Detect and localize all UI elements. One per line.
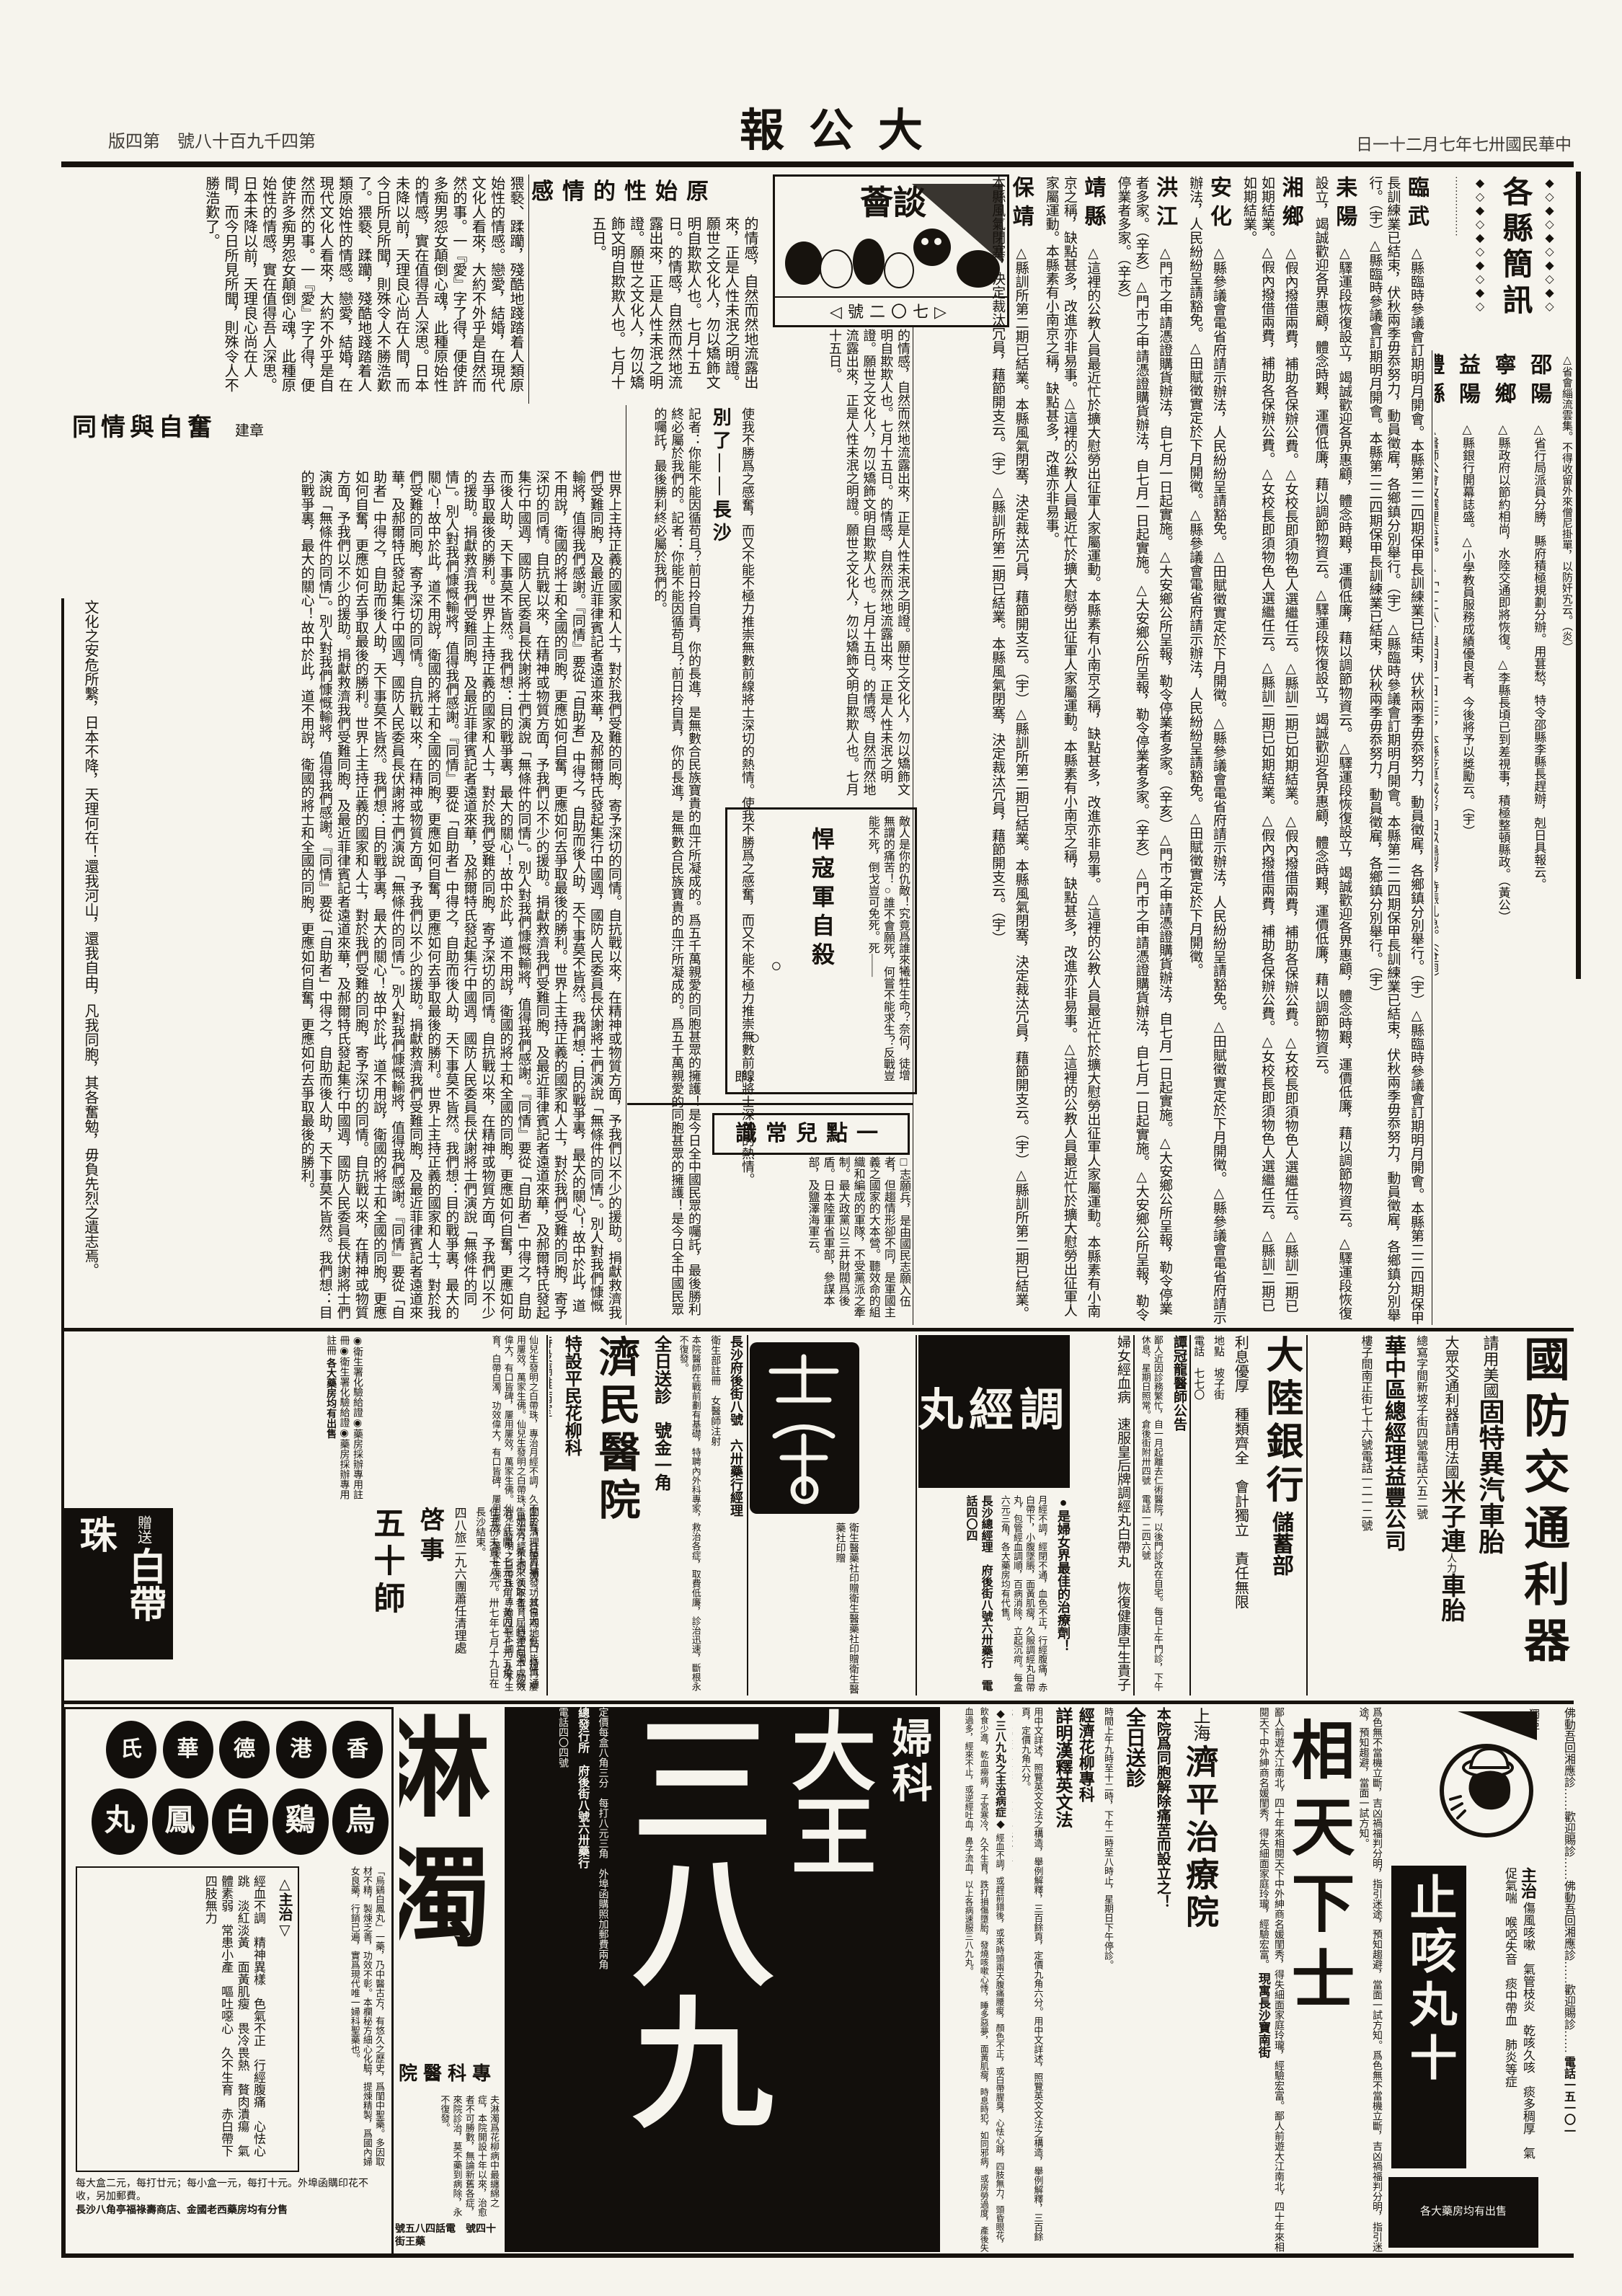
date-line: 日一十二月七年七卅國民華中 [1312, 134, 1572, 160]
wushi-unit-small: 四八旅二九六團蕭任清理處 [451, 1507, 466, 1696]
ad-divider-3 [1133, 1335, 1135, 1696]
bank-telephone: 電話 七七〇 [1192, 1335, 1205, 1696]
col-rule-4 [1432, 350, 1432, 1325]
ads-band1-rule [61, 1328, 1574, 1331]
jimin-dept1: 特設平民花柳科 [559, 1335, 582, 1696]
county-section: 靖縣△這裡的公教人員最近忙於擴大慰勞出征軍人家屬運動。本縣素有小南京之稱，缺點甚… [1042, 176, 1107, 1325]
county-body: △門市之申請憑證購貨辦法，自七月一日起實施。△大安鄉公所呈報，勒令停業者多家。（… [1115, 176, 1172, 1321]
cough-ad: 獨亞 止咳丸十 主治 傷風咳嗽 氣管枝炎 乾咳久咳 痰多稠厚 氣促氣喘 喉啞失音… [1386, 1707, 1541, 2252]
ink-logo [750, 1342, 859, 1514]
goodyear-title: 國防交通利器 [1512, 1335, 1573, 1696]
fuke389-price: 定價每盒八角三分 每打八元三角 外埠函購照加郵費兩角 [595, 1707, 608, 2252]
monkey-outline-1 [820, 250, 852, 288]
wushi-body: 關於清理結算補發，其日期地點，特再通告如次：希未來領取者，屆時逕向本處接洽。計開… [473, 1507, 539, 1696]
circle-mark-2: ○ [749, 1026, 761, 1050]
bank-name-col: 大陸銀行 儲蓄部 [1255, 1335, 1305, 1696]
bank-ad: 大陸銀行 儲蓄部 利息優厚 種類齊全 會計獨立 責任無限 地點 坡子街 電話 七… [1192, 1335, 1305, 1696]
tiaojing-ad: 婦女經血病 速服皇后牌調經丸白帶丸 恢復健康早生貴子 丸經調 ●是婦女界最佳的治… [918, 1335, 1132, 1696]
tan-title: 譚冠龍醫師公告 [1170, 1335, 1188, 1696]
bank-features: 利息優厚 種類齊全 會計獨立 責任無限 [1231, 1335, 1249, 1696]
ad-divider-1 [1306, 1335, 1308, 1696]
baifeng-price-sellers: 每大盒二元，每打廿元；每小盒一元，每打十元。外埠函購印花不收，另加郵費。 長沙八… [76, 2178, 381, 2247]
brand-oval: 港 [276, 1721, 327, 1778]
county-name: 寧鄉 [1492, 353, 1515, 418]
county-section: 邵陽△省行局派員分勝，縣府積極規劃分辦。用葚愁，特令邵縣李縣長趕辦，剋日具報云。 [1525, 353, 1554, 1324]
county-body: △縣銀行開幕誌盛。△小學教員服務成績優良者，今後將予以獎勵云。（宇） [1461, 418, 1474, 838]
county-name: 洪江 [1153, 176, 1176, 241]
fuke389-black-panel: 婦科 大王 三八九 定價每盒八角三分 每打八元三角 外埠函購照加郵費兩角 總發行… [505, 1707, 940, 2252]
side-column: 佛動吾回湘應診……歡迎賜診……佛動吾回湘應診……歡迎賜診…… 電話一五一〇一 [1547, 1707, 1576, 2252]
baidai-logo-col: 贈送 白帶珠 [68, 1515, 167, 1652]
brand-oval: 香 [332, 1721, 383, 1778]
masthead: 報公大 [692, 102, 995, 164]
ad-divider-2 [1189, 1335, 1191, 1696]
brief-col-a: △省會緇流雲集。不得收留外來僧尼掛單，以防奸宄云。（炎） 邵陽△省行局派員分勝，… [1435, 353, 1573, 1324]
cough-big-text: 止咳丸十 [1397, 1873, 1460, 2161]
essay-text-right: 的情感，自然而然地流露出來，正是人性未泯之明證。願世之文化人，勿以矯飾文明自欺欺… [531, 216, 759, 402]
book-seller: 代售處長沙各大書局 東萬興紙號印行 [1012, 1707, 1014, 2252]
tiaojing-logo-box: 丸經調 [918, 1335, 1070, 1488]
wushi-unit-big: 五十師 [365, 1507, 407, 1696]
cough-symptoms: 傷風咳嗽 氣管枝炎 乾咳久咳 痰多稠厚 氣促氣喘 喉啞失音 痰中帶血 肺炎等症 [1503, 1867, 1535, 2159]
brand-oval: 白 [212, 1789, 268, 1855]
tongqing-author: 建章 [235, 422, 264, 440]
county-section: 安化△縣參議會電省府請示辦法，人民紛紛呈請豁免。△田賦徵實定於下月開徵。△縣參議… [1186, 176, 1233, 1325]
changshi-title: 識常兒點一 [712, 1113, 910, 1155]
county-name: 耒陽 [1332, 176, 1356, 241]
header-rule [61, 161, 1574, 167]
ads-band2-rule [61, 1701, 1574, 1704]
jimin-agent: 長沙府後街八號 六卅藥行經理 [727, 1335, 744, 1696]
brief-header-box: ◆◇◆◇◆◇◆◇◆◇ 各縣簡訊 ◆◇◆◇◆◇◆◇◆◇ ……………… [1435, 176, 1573, 346]
goodyear-line2-small: 大眾交通利器請用法國 [1442, 1335, 1458, 1479]
tongqing-body: 世界上主持正義的國家和人士，對於我們受難的同胞，寄予深切的同情。自抗戰以來，在精… [66, 470, 623, 1324]
tiaojing-slogan: ●是婦女界最佳的治療劑！ [1054, 1495, 1071, 1696]
baifeng-price: 每大盒二元，每打廿元；每小盒一元，每打十元。外埠函購印花不收，另加郵費。 [76, 2178, 381, 2204]
brand-oval: 華 [163, 1721, 213, 1778]
hankou-box: 敵人是你的仇敵！究竟爲誰來犧牲生命？奈何，徒增無謂的痛苦！○誰不會願死，何嘗不能… [725, 807, 917, 1094]
jiping-clinic-ad: 上海 濟平治療院 本院爲同胞解除痛苦而設立之！ 全日送診 時間上午九時至十二時，… [1077, 1707, 1221, 2252]
baidai-brand-small: 贈送 [136, 1515, 151, 1544]
tiaojing-lower: ●是婦女界最佳的治療劑！ 月經不調，經閉不通，血色不正，行經腹痛，赤白帶下，小腹… [918, 1495, 1071, 1696]
cough-zhuzhi-label: 主治 [1519, 1867, 1537, 1899]
brief-intro: △省會緇流雲集。不得收留外來僧尼掛單，以防奸宄云。（炎） [1559, 353, 1573, 1324]
fuke389-giant: 三八九 [615, 1707, 763, 2252]
side-column-text: 佛動吾回湘應診……歡迎賜診……佛動吾回湘應診……歡迎賜診…… [1562, 1707, 1574, 2053]
right-edge-rule [1576, 172, 1581, 979]
county-body: △醫師公會改選理監事。△「一二八」與四月一日上午，本縣乾旱成災，田畝龜裂，待賑孔… [1435, 418, 1438, 985]
county-name: 臨武 [1404, 176, 1428, 241]
jiping-name-col: 上海 濟平治療院 [1177, 1707, 1221, 2252]
cough-zhuzhi: 主治 傷風咳嗽 氣管枝炎 乾咳久咳 痰多稠厚 氣促氣喘 喉啞失音 痰中帶血 肺炎… [1471, 1867, 1538, 2168]
brief-region-b: 臨武△縣臨時參議會訂期明月開會。本縣第二二四期保甲長訓練業已結束，伏秋兩季毋忝努… [917, 176, 1430, 1325]
jiping-name: 濟平治療院 [1182, 1745, 1218, 1932]
fortuneteller-title: 相天下士 [1289, 1717, 1358, 2150]
bieliao-body: 記者：你能不能因循苟且？前日拎自責，你的長進，是無數合民族寶貴的血汗所凝成的。爲… [651, 407, 702, 1323]
county-name: 安化 [1207, 176, 1231, 241]
wushi-title: 啓事 [412, 1507, 445, 1696]
ink-logo-glyphs [750, 1342, 859, 1514]
county-body: △假內撥借兩費，補助各保辦公費。△女校長即須物色人選繼任云。△縣訓二期已如期結業… [1241, 176, 1298, 1313]
baifeng-zhuzhi-box: △主治▽ 經血不調 精神異樣 色氣不正 行經腹痛 心怯心跳 淡紅淡黃 面黃肌瘦 … [76, 1866, 299, 2172]
ornament-left: ◆◇◆◇◆◇◆◇◆◇ [1471, 176, 1486, 346]
county-name: 邵陽 [1527, 353, 1551, 418]
county-body: △驛運段恢復設立，竭誠歡迎各界惠顧，體念時艱，運價低廉，藉以調節物資云。△驛運段… [1313, 176, 1352, 1320]
monkey-silhouette-1 [785, 241, 823, 285]
county-section: 洪江△門市之申請憑證購貨辦法，自七月一日起實施。△大安鄉公所呈報，勒令停業者多家… [1114, 176, 1179, 1325]
goodyear-company: 華中區總經理益豐公司 [1378, 1335, 1407, 1696]
cough-black-panel: 止咳丸十 [1391, 1866, 1466, 2168]
county-name: 澧縣 [1435, 353, 1443, 418]
goodyear-line1-small: 請用美國 [1481, 1335, 1499, 1399]
jimin-fee: 全日送診 號金一角 [649, 1335, 672, 1696]
circle-mark-1: ○ [771, 954, 782, 978]
jimin-dept2: 特設隔離病室 [549, 1335, 554, 1696]
county-name: 益陽 [1455, 353, 1479, 418]
brief-title: 各縣簡訊 [1494, 176, 1534, 346]
jimin-note: 衛生部註冊 女醫師注射 [708, 1335, 721, 1696]
goodyear-line2-tail: 車胎 [1437, 1573, 1464, 1622]
goodyear-office2: 樓子間南正街七十六號電話一二一二號 [1357, 1335, 1373, 1696]
hankou-signature: 即。 [735, 1069, 761, 1086]
fuke389-label: 婦科 [881, 1717, 934, 2252]
col-rule-2 [626, 405, 626, 1325]
fortuneteller-address: 現寓長沙寶南街 [1257, 1972, 1270, 2058]
issue-number: 版四第 號八十百九千四第 [108, 131, 454, 160]
brand-oval: 丸 [92, 1789, 148, 1855]
county-name: 湘鄉 [1279, 176, 1303, 241]
baifeng-ad: 香 港 德 華 氏 烏 鷄 白 鳳 丸 「烏鷄白鳳丸」一藥，乃中醫古方，有悠久之… [63, 1707, 394, 2256]
goodyear-line2-note: 人力 [1445, 1553, 1456, 1573]
county-body: △省行局派員分勝，縣府積極規劃分辦。用葚愁，特令邵縣李縣長趕辦，剋日具報云。 [1532, 418, 1546, 890]
baidai-cert-area: ◉衛生署化驗給證◉藥房採辦專用註冊◉衛生署化驗給證◉藥房採辦專用註冊 各大藥房均… [63, 1335, 363, 1502]
county-name: 靖縣 [1081, 176, 1104, 241]
goodyear-ad: 國防交通利器 請用美國固特異汽車胎 大眾交通利器請用法國米子連人力車胎 總寫字間… [1309, 1335, 1573, 1696]
linzhuo-ad: 淋濁 院醫科專 夫淋濁爲花柳病中最纏綿之症，本院開設十年以來，治愈者不可勝數，無… [395, 1707, 500, 2252]
brief-dots: ……………… [1451, 176, 1464, 346]
county-section: 湘鄉△假內撥借兩費，補助各保辦公費。△女校長即須物色人選繼任云。△縣訓二期已如期… [1240, 176, 1305, 1325]
doctor-tan-notice: 譚冠龍醫師公告 鄙人近因診務繁忙，自一月起離去仁術醫院，以後門診改在自宅。每日上… [1136, 1335, 1188, 1696]
jiping-city: 上海 [1190, 1707, 1209, 1742]
fortuneteller-right-col: 爲色無不當機立斷，吉凶禍福判分明，指引迷途，預知趨避，當面一試方知。爲色無不當機… [1355, 1707, 1383, 2252]
bank-name: 大陸銀行 [1260, 1335, 1301, 1508]
hankou-title: 悍寇軍自殺 [805, 827, 837, 1043]
jiping-slogan: 本院爲同胞解除痛苦而設立之！ [1153, 1707, 1171, 2252]
ad-divider-5 [747, 1335, 748, 1696]
fuke389-tel: 電話四〇四號 [556, 1707, 569, 2252]
fuke389-zhuzhi-head: ◆三八九丸之主治病症◆ [994, 1707, 1006, 1830]
col-rule-3 [913, 174, 913, 1325]
linzhuo-title: 淋濁 [399, 1711, 497, 2053]
brand-oval: 氏 [106, 1721, 156, 1778]
jimin-body: 本院醫師在戰前劃有基礎，特聘內外科專家，救治各症，取費低廉，診治迅速，斷根永不復… [677, 1335, 701, 1696]
county-body: △縣臨時參議會訂期明月開會。本縣第二二四期保甲長訓練業已結束，伏秋兩季毋忝努力，… [1367, 176, 1424, 1325]
fortuneteller-ad: 爲色無不當機立斷，吉凶禍福判分明，指引迷途，預知趨避，當面一試方知。爲色無不當機… [1226, 1707, 1383, 2252]
linzhuo-subtitle: 院醫科專 [395, 2059, 500, 2089]
book-body: 用中文詳述，照覽英文文法之構造，舉例解釋，三百餘頁，定價九角六分。用中文詳述，照… [1019, 1707, 1044, 2252]
essay-continuation: 的情感，自然而然地流露出來，正是人性未泯之明證。願世之文化人，勿以矯飾文明自欺欺… [763, 329, 911, 800]
bank-dept: 儲蓄部 [1269, 1511, 1293, 1576]
county-section: 寧鄉△縣政府以節約相尚，水陸交通即將恢復。△李縣長頃已到差視事，積極整頓縣政。（… [1489, 353, 1517, 1324]
jiping-dept: 經濟花柳專科 [1077, 1707, 1096, 2252]
fuke389-zhuzhi: ◆三八九丸之主治病症◆ 經血不調，或趕前錯後，或來時頭兩天腹痛腰痠，顏色不正，或… [944, 1707, 1008, 2252]
brand-oval: 德 [219, 1721, 270, 1778]
wushi-notice: 關於清理結算補發，其日期地點，特再通告如次：希未來領取者，屆時逕向本處接洽。計開… [180, 1507, 539, 1696]
county-name: 保靖 [1009, 176, 1033, 241]
brand-oval: 鷄 [272, 1789, 329, 1855]
tongqing-title: 同情與自奮 [72, 412, 216, 445]
side-column-tel: 電話一五一〇一 [1562, 2056, 1574, 2137]
monkey-outline-2 [885, 253, 913, 288]
county-section: 益陽△縣銀行開幕誌盛。△小學教員服務成績優良者，今後將予以獎勵云。（宇） [1453, 353, 1481, 1324]
goodyear-line2: 大眾交通利器請用法國米子連人力車胎 [1434, 1335, 1466, 1696]
county-section: 保靖△縣訓所第二期已結業。本縣風氣閉塞，決定裁汰冗員，藉節開支云。（宇）△縣訓所… [988, 176, 1035, 1325]
brand-oval: 烏 [332, 1789, 389, 1855]
changshi-body: □志願兵，是由國民志願入伍者，但趨情形卻不同，是軍國主義之國家的大本營。聽效命的… [710, 1156, 911, 1324]
county-section: 臨武△縣臨時參議會訂期明月開會。本縣第二二四期保甲長訓練業已結束，伏秋兩季毋忝努… [1365, 176, 1430, 1325]
fuke389-dawang: 大王 [768, 1707, 881, 2252]
tongqing-title-row: 同情與自奮 建章 [72, 412, 288, 463]
left-edge-column: 文化之安危所繫，日本不降，天理何在！還我河山，還我自由，凡我同胞，其各奮勉，毋負… [66, 600, 99, 1322]
goodyear-line1: 請用美國固特異汽車胎 [1472, 1335, 1507, 1696]
fuke389-ad: ◆三八九丸之主治病症◆ 經血不調，或趕前錯後，或來時頭兩天腹痛腰痠，顏色不正，或… [505, 1707, 1008, 2252]
hankou-body: 敵人是你的仇敵！究竟爲誰來犧牲生命？奈何，徒增無謂的痛苦！○誰不會願死，何嘗不能… [841, 815, 910, 1086]
goodyear-line1-big: 固特異汽車胎 [1476, 1399, 1504, 1554]
goodyear-office1: 總寫字間新坡子街四號電話六五二號 [1413, 1335, 1428, 1696]
baifeng-brand-row2: 烏 鷄 白 鳳 丸 [92, 1789, 389, 1859]
ad-divider-6 [546, 1335, 548, 1696]
county-section: 耒陽△驛運段恢復設立，竭誠歡迎各界惠顧，體念時艱，運價低廉，藉以調節物資云。△驛… [1312, 176, 1359, 1325]
book-ad: 詳明漢釋英文法 用中文詳述，照覽英文文法之構造，舉例解釋，三百餘頁，定價九角六分… [1012, 1707, 1073, 2252]
essay-headline: 感情的性始原 [531, 177, 761, 209]
baifeng-symptoms: 經血不調 精神異樣 色氣不正 行經腹痛 心怯心跳 淡紅淡黃 面黃肌瘦 畏冷畏熱 … [81, 1875, 266, 2163]
jiping-fee: 全日送診 [1120, 1707, 1147, 2252]
bank-address: 地點 坡子街 [1210, 1335, 1225, 1696]
brand-oval: 鳳 [152, 1789, 208, 1855]
baidai-sale: 各大藥房均有出售 [325, 1358, 336, 1439]
county-body: △這裡的公教人員最近忙於擴大慰勞出征軍人家屬運動。本縣素有小南京之稱，缺點甚多，… [1044, 176, 1101, 1318]
tiaojing-headline: 婦女經血病 速服皇后牌調經丸白帶丸 恢復健康早生貴子 [1076, 1335, 1132, 1696]
jiping-hours: 時間上午九時至十二時，下午二時至八時止，星期日下午停診。 [1102, 1707, 1114, 2252]
jimin-name: 濟民醫院 [588, 1335, 643, 1696]
fuke389-agent: 總發行所 府後街八號六卅藥行 [575, 1707, 590, 2252]
baifeng-sellers: 長沙八角亭福祿壽商店、金國老西藥房均有分售 [76, 2204, 381, 2217]
county-body: △縣訓所第二期已結業。本縣風氣閉塞，決定裁汰冗員，藉節開支云。（宇）△縣訓所第二… [990, 176, 1029, 1320]
ornament-right: ◆◇◆◇◆◇◆◇◆◇ [1541, 176, 1556, 346]
goodyear-line2-big: 米子連 [1437, 1479, 1464, 1553]
baifeng-description: 「烏鷄白鳳丸」一藥，乃中醫古方，有悠久之歷史，爲閨中聖藥。多因取材不精，製煉乏善… [306, 1866, 386, 2169]
newspaper-page: 版四第 號八十百九千四第 報公大 日一十二月七年七卅國民華中 薈談 [0, 0, 1622, 2296]
monkey-silhouette-2 [853, 239, 885, 285]
col-rule-1 [528, 174, 529, 404]
cough-footer: 各大藥房均有出售 [1388, 2177, 1538, 2248]
tiaojing-logo-text: 丸經調 [918, 1382, 1070, 1441]
baifeng-brand-row1: 香 港 德 華 氏 [106, 1721, 383, 1781]
divider-rule [627, 1103, 913, 1105]
ad-divider-4 [916, 1335, 917, 1696]
left-ads-block: 仙兒生發明之白帶珠，專治月經不調，久不生育，白帶白濁，功效偉大，有口皆碑，屢用屢… [63, 1335, 541, 1696]
tiaojing-body: 月經不調，經閉不通，血色不正，行經腹痛，赤白帶下，小腹墜脹，面黃肌瘦，久服調經丸… [999, 1495, 1049, 1696]
ink-logo-caption: 衛生醫藥社印贈衛生醫藥社印贈衛生醫藥社印贈 [750, 1522, 859, 1694]
jimin-hospital-ad: 長沙府後街八號 六卅藥行經理 衛生部註冊 女醫師注射 本院醫師在戰前劃有基礎，特… [549, 1335, 744, 1696]
fortuneteller-left-col: 鄙人前遊大江南北，四十年來相閱天下中外紳商名媛閨秀，得失細面家庭玲瓏，經驗宏富。… [1226, 1707, 1286, 2252]
coughing-man-illustration [1429, 1711, 1537, 1860]
left-triangle-icon: ◁ [830, 301, 848, 322]
county-body: △縣政府以節約相尚，水陸交通即將恢復。△李縣長頃已到差視事，積極整頓縣政。（黃公… [1497, 418, 1510, 923]
book-title: 詳明漢釋英文法 [1050, 1707, 1073, 2252]
baidai-logo-box: 贈送 白帶珠 [63, 1508, 173, 1659]
linzhuo-body: 夫淋濁爲花柳病中最纏綿之症，本院開設十年以來，治愈者不可勝數，無論新舊各症，來院… [395, 2095, 500, 2222]
essay-text-left: 猥褻、蹂躪，殘酷地踐踏着人類原始性的情感。戀愛，結婚，在現代文化人看來，大約不外… [66, 176, 525, 402]
county-section: 澧縣△醫師公會改選理監事。△「一二八」與四月一日上午，本縣乾旱成災，田畝龜裂，待… [1435, 353, 1445, 1324]
tiaojing-agent: 長沙總經理 府後街八號六卅藥行 電話四〇四 [962, 1495, 993, 1696]
linzhuo-address: 號五八四話電 號四十街王藥 [395, 2223, 500, 2249]
county-body: △縣參議會電省府請示辦法，人民紛紛呈請豁免。△田賦徵實定於下月開徵。△縣參議會電… [1187, 176, 1226, 1324]
baifeng-zhuzhi-label: △主治▽ [269, 1875, 293, 2163]
tan-body: 鄙人近因診務繁忙，自一月起離去仁術醫院，以後門診改在自宅。每日上午門診，下午休息… [1140, 1335, 1164, 1696]
